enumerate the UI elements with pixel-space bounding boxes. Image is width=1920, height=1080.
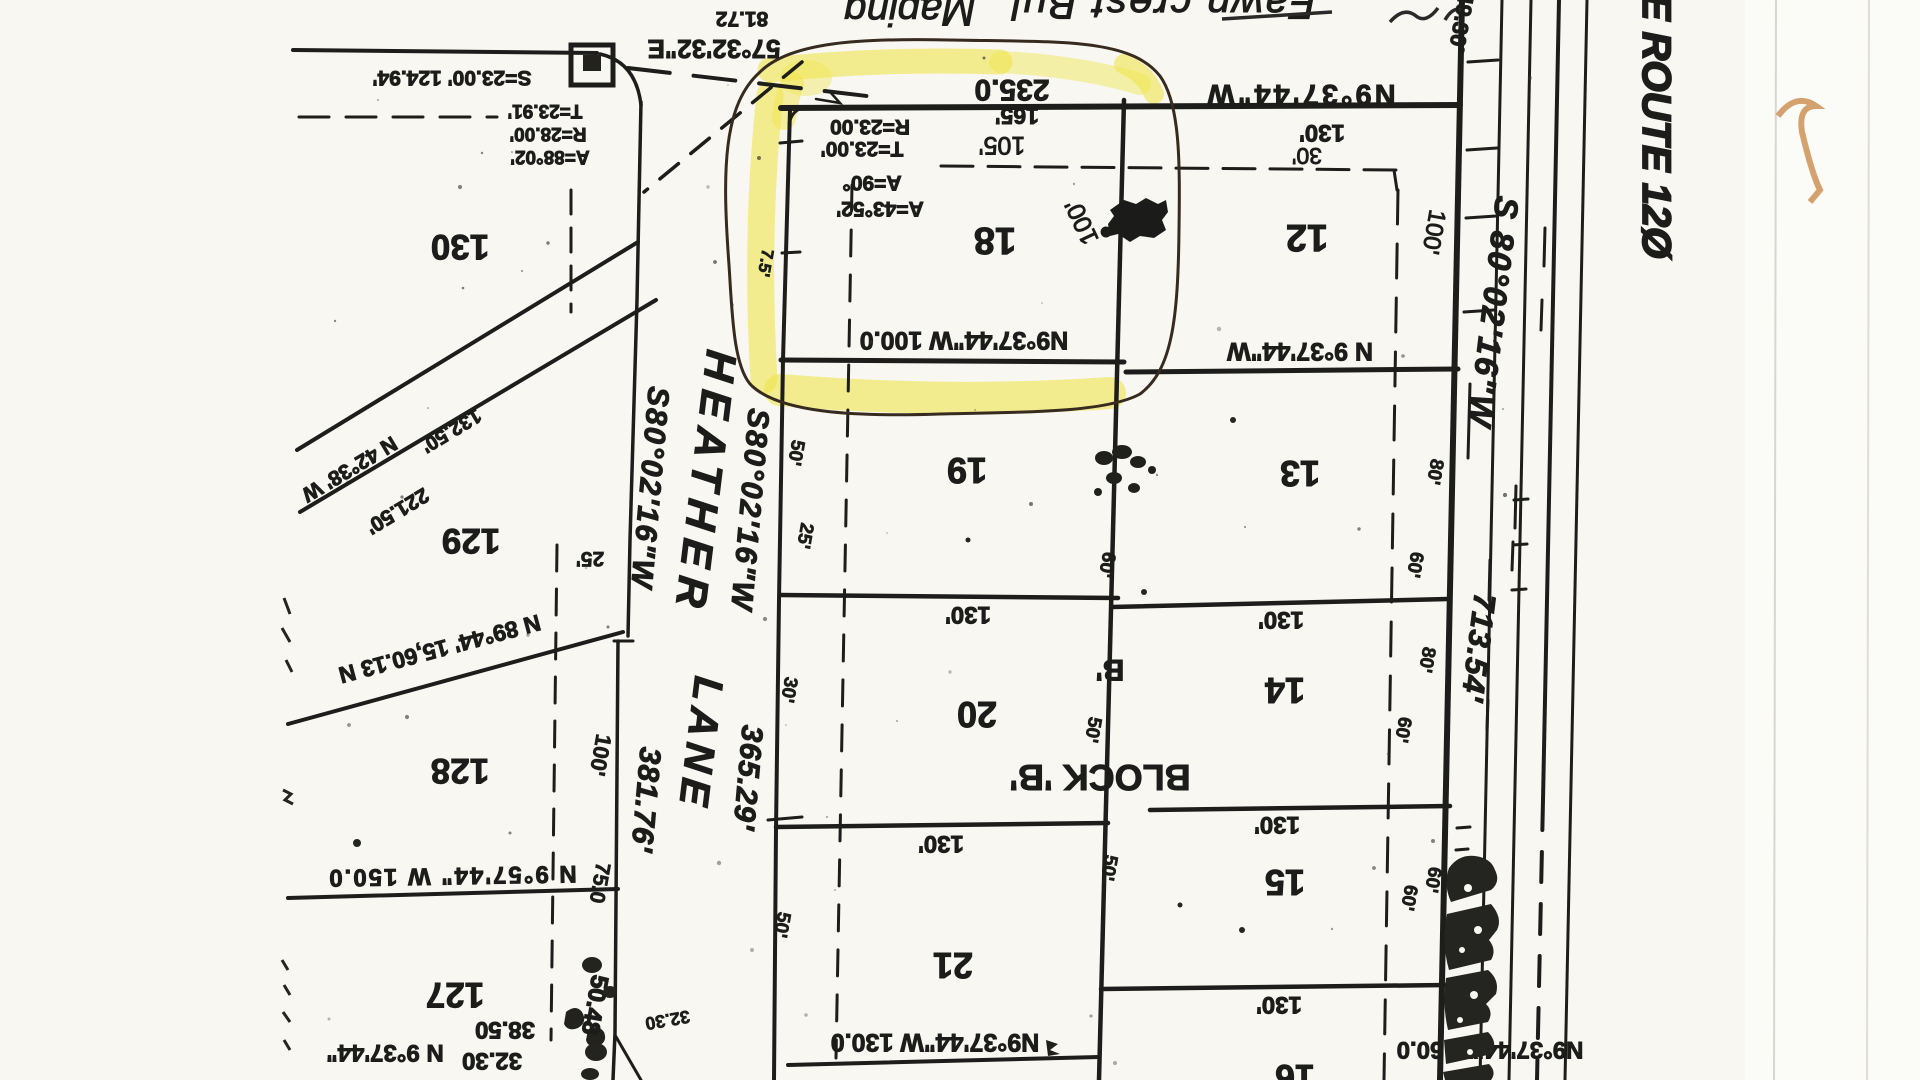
svg-text:50': 50' bbox=[1080, 715, 1105, 744]
svg-text:130: 130 bbox=[431, 227, 489, 266]
svg-text:N 9°37'44"W: N 9°37'44"W bbox=[1227, 337, 1373, 365]
svg-text:130': 130' bbox=[1258, 606, 1304, 633]
svg-text:80': 80' bbox=[1414, 645, 1439, 674]
svg-text:60': 60' bbox=[1390, 715, 1415, 744]
svg-text:A=88°02': A=88°02' bbox=[510, 146, 589, 167]
svg-text:60': 60' bbox=[1402, 550, 1427, 579]
svg-text:60': 60' bbox=[1396, 883, 1421, 912]
svg-text:50': 50' bbox=[769, 910, 794, 939]
svg-text:21: 21 bbox=[933, 945, 973, 986]
svg-text:A=43°52': A=43°52' bbox=[836, 197, 924, 220]
svg-text:A=90°: A=90° bbox=[842, 171, 901, 194]
svg-text:25': 25' bbox=[576, 547, 604, 570]
svg-text:130': 130' bbox=[918, 830, 964, 857]
svg-text:130': 130' bbox=[1256, 991, 1302, 1018]
svg-text:130': 130' bbox=[945, 601, 991, 628]
svg-text:129: 129 bbox=[442, 521, 500, 560]
svg-text:N9°37'44"W: N9°37'44"W bbox=[1204, 78, 1395, 110]
svg-text:18: 18 bbox=[974, 219, 1016, 261]
svg-text:32.30: 32.30 bbox=[462, 1047, 522, 1074]
svg-text:E ROUTE 12Ø: E ROUTE 12Ø bbox=[1634, 0, 1678, 260]
svg-text:B': B' bbox=[1096, 653, 1125, 686]
svg-text:N9°37'44"W 130.0: N9°37'44"W 130.0 bbox=[831, 1028, 1039, 1056]
svg-text:BLOCK 'B': BLOCK 'B' bbox=[1009, 757, 1190, 798]
svg-text:19: 19 bbox=[947, 450, 987, 491]
svg-text:15: 15 bbox=[1265, 862, 1305, 903]
svg-text:R=23.00: R=23.00 bbox=[830, 115, 910, 138]
svg-text:13: 13 bbox=[1280, 453, 1320, 494]
svg-text:127: 127 bbox=[426, 975, 484, 1014]
svg-text:105': 105' bbox=[979, 131, 1025, 159]
svg-text:N 9°37'44": N 9°37'44" bbox=[326, 1039, 443, 1066]
svg-text:S=23.00' 124.94': S=23.00' 124.94' bbox=[373, 66, 532, 89]
svg-text:30': 30' bbox=[1292, 143, 1322, 169]
svg-text:N 9°57'44" W 150.0: N 9°57'44" W 150.0 bbox=[327, 860, 577, 891]
svg-text:Fawn crest Bul: Fawn crest Bul bbox=[1010, 0, 1316, 28]
svg-text:30': 30' bbox=[776, 675, 801, 704]
svg-text:38.50: 38.50 bbox=[475, 1016, 535, 1043]
svg-text:235.0: 235.0 bbox=[974, 73, 1049, 106]
svg-text:T=23.00': T=23.00' bbox=[821, 137, 904, 160]
svg-text:R=28.00': R=28.00' bbox=[510, 123, 587, 144]
svg-text:128: 128 bbox=[431, 751, 489, 790]
svg-text:16: 16 bbox=[1275, 1057, 1315, 1080]
svg-text:T=23.91': T=23.91' bbox=[508, 100, 583, 121]
svg-text:50': 50' bbox=[1096, 853, 1121, 882]
svg-text:81.72: 81.72 bbox=[716, 7, 769, 30]
svg-text:50': 50' bbox=[783, 438, 808, 467]
svg-text:60': 60' bbox=[1420, 865, 1445, 894]
svg-text:Maping: Maping bbox=[844, 0, 975, 33]
svg-text:57°32'32"E: 57°32'32"E bbox=[647, 34, 780, 64]
svg-text:N9°37'44"W 100.0: N9°37'44"W 100.0 bbox=[860, 326, 1068, 354]
svg-text:60': 60' bbox=[1094, 550, 1119, 579]
svg-text:165': 165' bbox=[995, 103, 1039, 129]
svg-text:80': 80' bbox=[1422, 457, 1447, 486]
svg-text:130': 130' bbox=[1254, 811, 1300, 838]
svg-text:12: 12 bbox=[1286, 216, 1328, 258]
svg-text:130': 130' bbox=[1299, 119, 1345, 146]
svg-text:20: 20 bbox=[957, 694, 997, 735]
svg-text:25': 25' bbox=[792, 521, 817, 550]
svg-text:14: 14 bbox=[1265, 670, 1305, 711]
